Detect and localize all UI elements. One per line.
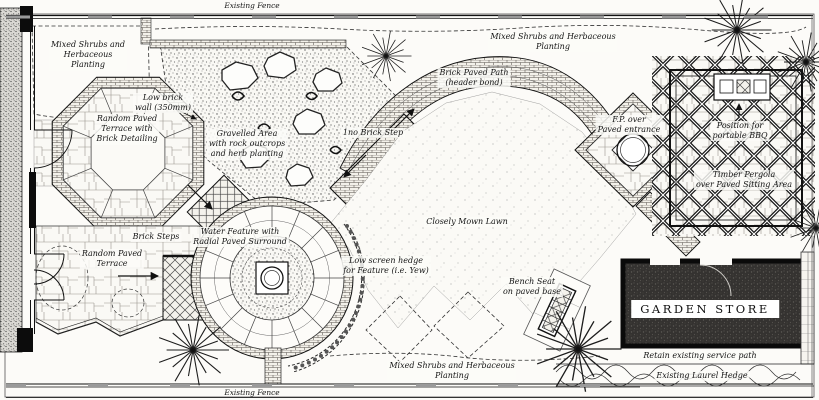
label-brick-paved-path: Brick Paved Path (header bond) (437, 68, 510, 88)
label-garden-store: GARDEN STORE (631, 300, 779, 318)
label-line: Radial Paved Surround (193, 237, 287, 247)
label-retain-service-path: Retain existing service path (641, 351, 758, 361)
label-line: Herbaceous (51, 50, 125, 60)
label-portable-bbq: Position for portable BBQ (710, 121, 769, 141)
label-random-terrace-lower: Random Paved Terrace (80, 249, 144, 269)
label-line: Mixed Shrubs and Herbaceous (389, 361, 514, 371)
label-bench-seat: Bench Seat on paved base (501, 277, 563, 297)
pergola (652, 56, 815, 236)
label-existing-fence-top: Existing Fence (222, 1, 281, 10)
label-line: Mixed Shrubs and (51, 40, 125, 50)
label-line: Low brick (135, 93, 191, 103)
label-low-screen-hedge: Low screen hedge for Feature (i.e. Yew) (341, 256, 431, 276)
label-line: with rock outcrops (209, 139, 285, 149)
label-low-brick-wall: Low brick wall (350mm) (133, 93, 193, 113)
store-window (700, 258, 732, 265)
label-line: on paved base (503, 287, 561, 297)
label-mixed-shrubs-top-left: Mixed Shrubs and Herbaceous Planting (49, 40, 127, 71)
label-mixed-shrubs-bottom: Mixed Shrubs and Herbaceous Planting (387, 361, 516, 381)
label-line: over Paved Sitting Area (696, 180, 792, 190)
label-line: (header bond) (439, 78, 508, 88)
label-water-feature: Water Feature with Radial Paved Surround (191, 227, 289, 247)
water-feature (191, 197, 353, 384)
label-line: Water Feature with (193, 227, 287, 237)
label-line: Closely Mown Lawn (426, 217, 508, 227)
label-line: Brick Paved Path (439, 68, 508, 78)
label-line: Planting (490, 42, 615, 52)
label-line: Random Paved (82, 249, 142, 259)
tree-symbol (705, 0, 772, 64)
label-mixed-shrubs-top: Mixed Shrubs and Herbaceous Planting (488, 32, 617, 52)
label-line: wall (350mm) (135, 103, 191, 113)
label-line: Paved entrance (598, 125, 661, 135)
label-brick-steps: Brick Steps (131, 232, 182, 242)
label-line: Low screen hedge (343, 256, 429, 266)
label-line: Random Paved (96, 114, 157, 124)
garden-plan: Existing Fence Mixed Shrubs and Herbaceo… (0, 0, 819, 400)
label-line: Mixed Shrubs and Herbaceous (490, 32, 615, 42)
label-line: Planting (51, 60, 125, 70)
label-line: Timber Pergola (696, 170, 792, 180)
label-fp-entrance: F.P. over Paved entrance (596, 115, 663, 135)
bed-edge-top (155, 25, 806, 33)
label-line: Existing Fence (224, 1, 279, 10)
label-line: Terrace with (96, 124, 157, 134)
label-line: Brick Steps (133, 232, 180, 242)
label-existing-laurel-hedge: Existing Laurel Hedge (654, 371, 749, 381)
label-line: Bench Seat (503, 277, 561, 287)
label-line: F.P. over (598, 115, 661, 125)
label-line: portable BBQ (712, 131, 767, 141)
label-line: Retain existing service path (643, 351, 756, 361)
label-line: 1no Brick Step (343, 128, 403, 138)
label-line: Existing Laurel Hedge (656, 371, 747, 381)
label-line: Gravelled Area (209, 129, 285, 139)
store-window (650, 258, 680, 265)
label-line: Terrace (82, 259, 142, 269)
label-line: for Feature (i.e. Yew) (343, 266, 429, 276)
existing-fence-top (6, 16, 813, 19)
label-line: Brick Detailing (96, 134, 157, 144)
label-line: and herb planting (209, 149, 285, 159)
label-line: Position for (712, 121, 767, 131)
label-line: Existing Fence (224, 388, 279, 397)
label-1no-brick-step: 1no Brick Step (341, 128, 405, 138)
label-line: Planting (389, 371, 514, 381)
label-closely-mown-lawn: Closely Mown Lawn (424, 217, 510, 227)
label-gravelled-area: Gravelled Area with rock outcrops and he… (207, 129, 287, 160)
bbq-unit (714, 74, 770, 100)
label-timber-pergola: Timber Pergola over Paved Sitting Area (694, 170, 794, 190)
label-existing-fence-bottom: Existing Fence (222, 388, 281, 397)
label-random-terrace-octagon: Random Paved Terrace with Brick Detailin… (94, 114, 159, 145)
